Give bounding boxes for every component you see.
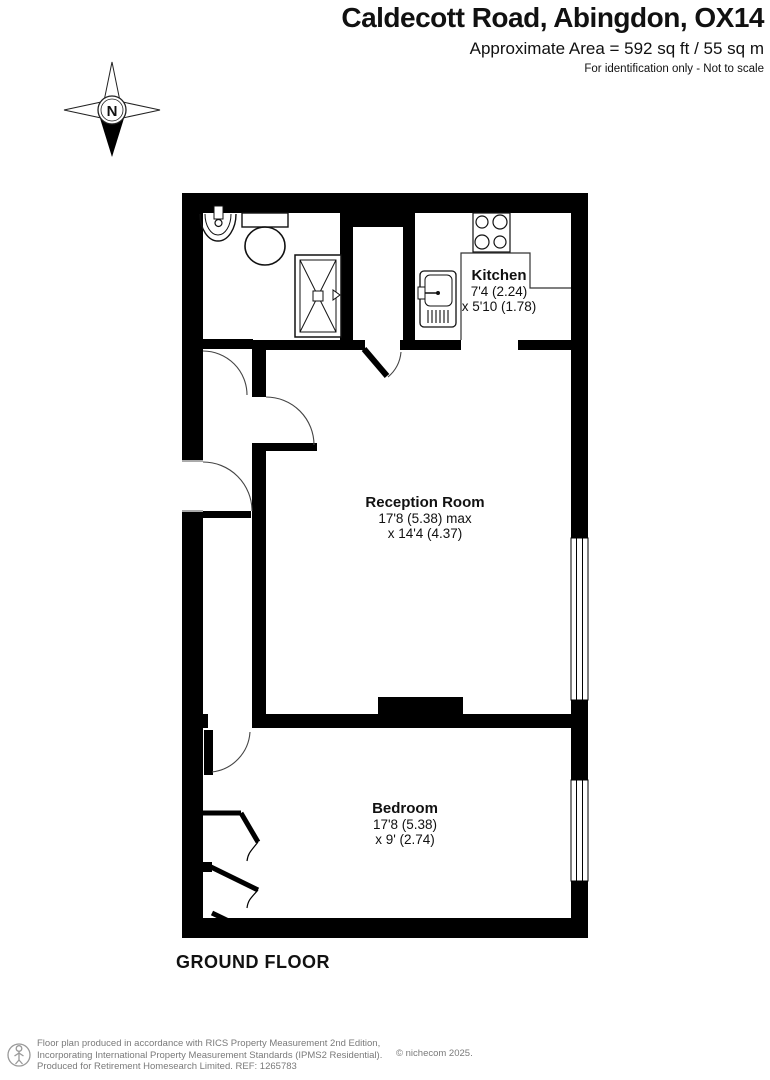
sink-icon <box>418 271 456 327</box>
kitchen-name: Kitchen <box>462 268 537 284</box>
identification-note: For identification only - Not to scale <box>341 63 764 75</box>
wall-hall-reception <box>252 443 266 714</box>
wall-left-lower <box>182 512 203 918</box>
entrance-door-arc <box>203 462 252 511</box>
wall-bottom <box>182 918 588 938</box>
entrance-door-leaf <box>203 511 251 518</box>
header: Caldecott Road, Abingdon, OX14 Approxima… <box>341 2 764 75</box>
compass-icon: N <box>64 62 160 157</box>
person-logo-icon <box>8 1044 30 1066</box>
reception-dim1: 17'8 (5.38) max <box>365 511 484 527</box>
kitchen-label: Kitchen 7'4 (2.24) x 5'10 (1.78) <box>462 268 537 315</box>
stove-icon <box>473 213 510 252</box>
shower-icon <box>295 255 341 337</box>
copyright: © nichecom 2025. <box>396 1048 473 1059</box>
bedroom-dim2: x 9' (2.74) <box>372 832 438 848</box>
wall-band-kitchen-west <box>400 340 461 350</box>
floor-label: GROUND FLOOR <box>176 952 330 973</box>
bedroom-door-arc <box>212 732 250 772</box>
wall-top <box>182 193 588 213</box>
bathroom-door-arc <box>203 351 247 395</box>
page-title: Caldecott Road, Abingdon, OX14 <box>341 2 764 34</box>
compass-north-label: N <box>107 103 118 120</box>
wall-right-lower <box>571 881 588 918</box>
bathroom-door-leaf <box>203 339 253 349</box>
reception-label: Reception Room 17'8 (5.38) max x 14'4 (4… <box>365 495 484 542</box>
reception-dim2: x 14'4 (4.37) <box>365 526 484 542</box>
floorplan-page: N <box>0 0 770 1080</box>
bathroom-fixtures <box>200 206 341 337</box>
wall-store-east <box>403 213 415 350</box>
wall-right-upper <box>571 213 588 538</box>
wall-right-mid <box>571 700 588 780</box>
bedroom-dim1: 17'8 (5.38) <box>372 817 438 833</box>
footer-disclaimer: Floor plan produced in accordance with R… <box>37 1038 382 1073</box>
store-door-leaf <box>364 349 387 376</box>
footer-line3: Produced for Retirement Homesearch Limit… <box>37 1061 382 1073</box>
bedroom-window <box>571 780 588 881</box>
wall-left-upper <box>182 213 203 460</box>
toilet-icon <box>242 213 288 265</box>
kitchen-dim2: x 5'10 (1.78) <box>462 299 537 315</box>
wall-bath-store-divider <box>340 213 353 350</box>
bedroom-label: Bedroom 17'8 (5.38) x 9' (2.74) <box>372 801 438 848</box>
kitchen-dim1: 7'4 (2.24) <box>462 284 537 300</box>
doors <box>182 339 401 775</box>
bedroom-door-leaf <box>204 730 213 775</box>
footer-line2: Incorporating International Property Mea… <box>37 1050 382 1062</box>
bedroom-name: Bedroom <box>372 801 438 817</box>
wall-bedroom-divider-west <box>203 714 208 728</box>
wall-hall-stub <box>252 343 266 397</box>
reception-window <box>571 538 588 700</box>
wall-store-top <box>353 213 403 227</box>
approximate-area: Approximate Area = 592 sq ft / 55 sq m <box>341 39 764 59</box>
reception-door-arc <box>266 397 314 445</box>
reception-name: Reception Room <box>365 495 484 511</box>
wall-band-bath-south <box>253 340 365 350</box>
store-door-arc <box>388 352 401 377</box>
footer-line1: Floor plan produced in accordance with R… <box>37 1038 382 1050</box>
chimney-breast <box>378 697 463 728</box>
wall-band-kitchen-east <box>518 340 571 350</box>
reception-door-leaf <box>266 443 317 451</box>
wardrobe-icon <box>203 813 258 927</box>
